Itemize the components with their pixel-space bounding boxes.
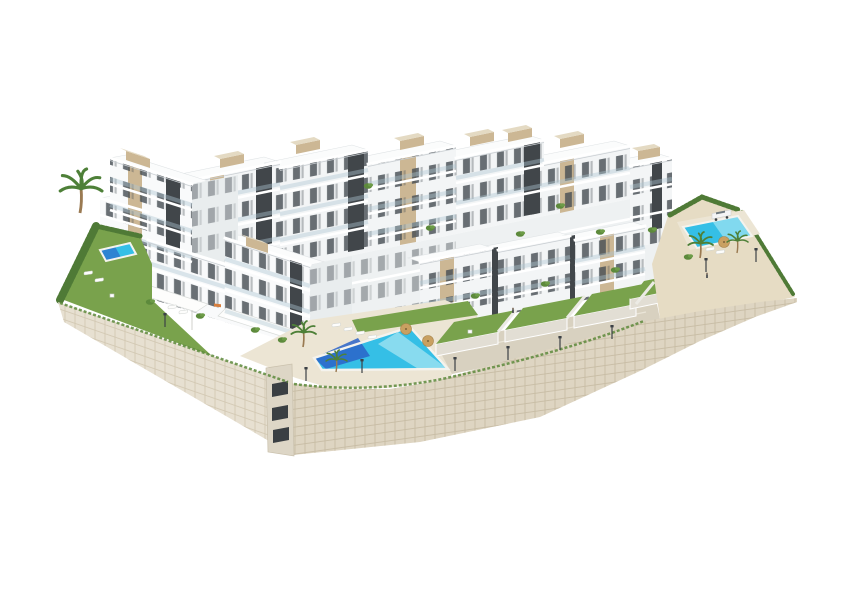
stair-core	[652, 160, 662, 230]
corner-stair-column	[266, 364, 294, 456]
person	[512, 308, 514, 313]
recess-core-2	[570, 235, 575, 304]
garden-table	[110, 294, 114, 297]
stair-core	[524, 140, 540, 216]
car-wheel	[726, 216, 729, 219]
render-canvas: Aerial 3D rendering of a modern white re…	[0, 0, 850, 614]
parasol	[401, 324, 412, 335]
parasol	[423, 336, 434, 347]
recess-core-1	[492, 247, 498, 318]
car-wheel	[715, 218, 718, 221]
scene-svg: Aerial 3D rendering of a modern white re…	[0, 0, 850, 614]
garden-table	[468, 330, 472, 333]
person	[706, 273, 708, 278]
